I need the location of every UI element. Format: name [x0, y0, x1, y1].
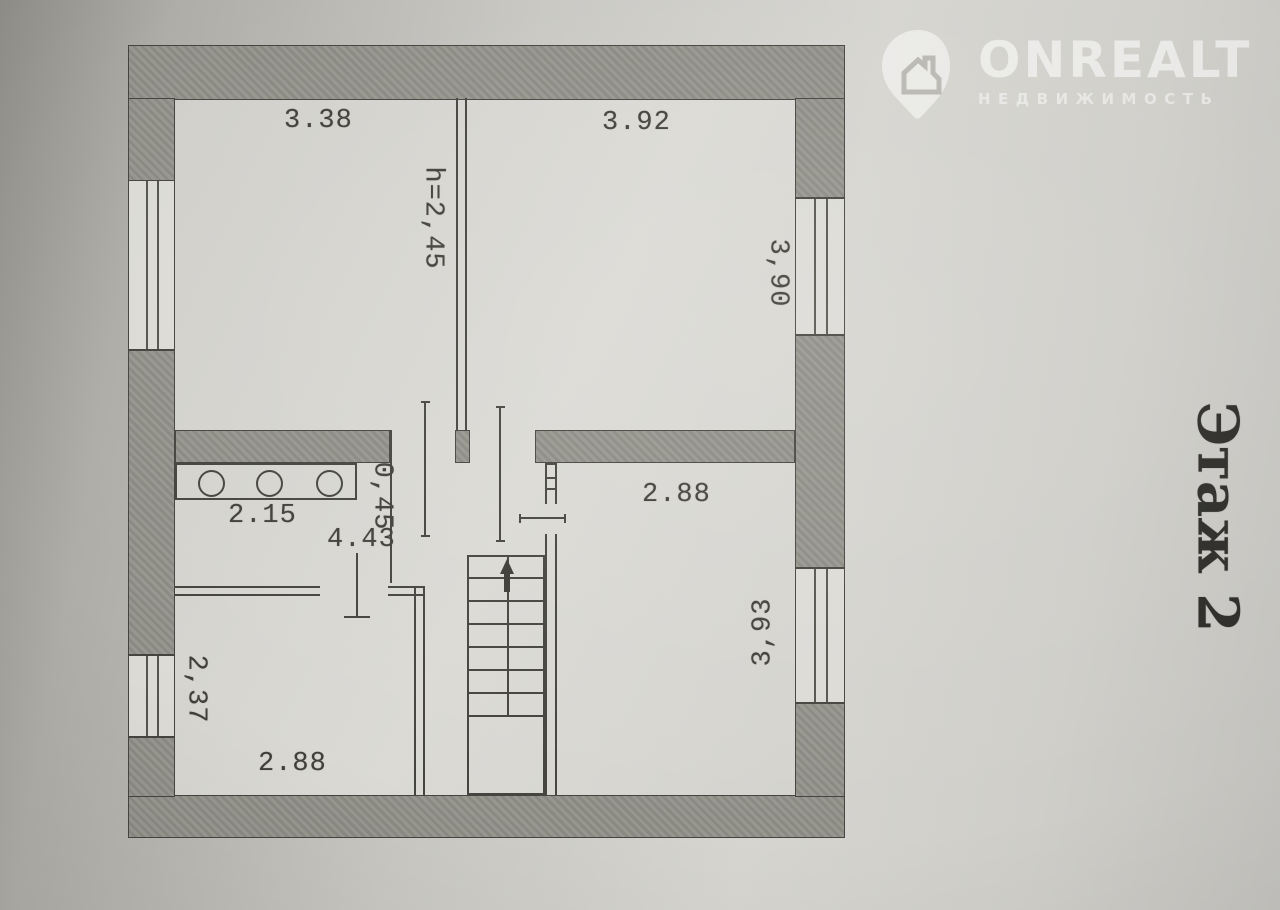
watermark-logo: ONREALT НЕДВИЖИМОСТЬ — [878, 26, 1258, 116]
watermark-subtitle: НЕДВИЖИМОСТЬ — [978, 90, 1252, 108]
watermark-brand: ONREALT — [978, 34, 1252, 86]
floor-plan: 3.38 3.92 h=2,45 3,90 2.88 0,45 4.43 2.1… — [128, 45, 845, 838]
staircase — [467, 555, 545, 795]
room-bl-top-wall-left — [175, 586, 320, 596]
partition-hall-upper — [545, 490, 557, 504]
partition-hall-lower — [545, 534, 557, 795]
door-leaf-right — [499, 407, 501, 541]
wall-right-lower — [795, 703, 845, 797]
dim-room-top-right-width: 3.92 — [602, 108, 671, 138]
dim-ceiling-height: h=2,45 — [418, 166, 448, 269]
wall-top — [128, 45, 845, 100]
burner-icon — [256, 470, 283, 497]
wall-right-middle — [795, 335, 845, 568]
window-left-upper — [128, 180, 175, 350]
pin-house-icon — [878, 28, 958, 120]
dim-counter-width: 2.15 — [228, 501, 297, 531]
dim-opening-width: 0,45 — [366, 462, 396, 531]
counter-with-burners — [175, 463, 357, 500]
window-right-upper — [795, 198, 845, 335]
wall-interior-left — [175, 430, 390, 463]
door-leaf-left — [424, 402, 426, 536]
dim-room-right-depth: 3,93 — [748, 598, 778, 667]
partition-top-rooms — [456, 98, 467, 430]
room-bl-right-wall — [414, 586, 425, 795]
dim-room-bottom-left-width: 2.88 — [258, 749, 327, 779]
wall-left-middle — [128, 350, 175, 655]
dim-room-bottom-left-depth: 2,37 — [180, 655, 210, 724]
dimension-extension-line — [356, 553, 358, 618]
partition-hall-opening-box — [545, 463, 557, 490]
dim-room-top-left-width: 3.38 — [284, 106, 353, 136]
door-leaf-hall — [520, 517, 565, 519]
dim-hall-length: 4.43 — [327, 525, 396, 555]
dim-room-right-width: 2.88 — [642, 480, 711, 510]
scanned-floor-plan-photo: ONREALT НЕДВИЖИМОСТЬ Этаж 2 — [0, 0, 1280, 910]
stair-direction-arrow-icon — [498, 559, 516, 593]
dimension-tick — [344, 616, 370, 618]
wall-left-lower — [128, 737, 175, 797]
dim-room-top-right-depth: 3,90 — [762, 239, 792, 308]
window-left-lower — [128, 655, 175, 737]
burner-icon — [198, 470, 225, 497]
burner-icon — [316, 470, 343, 497]
wall-bottom — [128, 795, 845, 838]
wall-left-upper — [128, 98, 175, 182]
wall-right-upper — [795, 98, 845, 198]
floor-title: Этаж 2 — [1184, 402, 1250, 633]
wall-interior-right — [535, 430, 795, 463]
window-right-lower — [795, 568, 845, 703]
wall-interior-center — [455, 430, 470, 463]
